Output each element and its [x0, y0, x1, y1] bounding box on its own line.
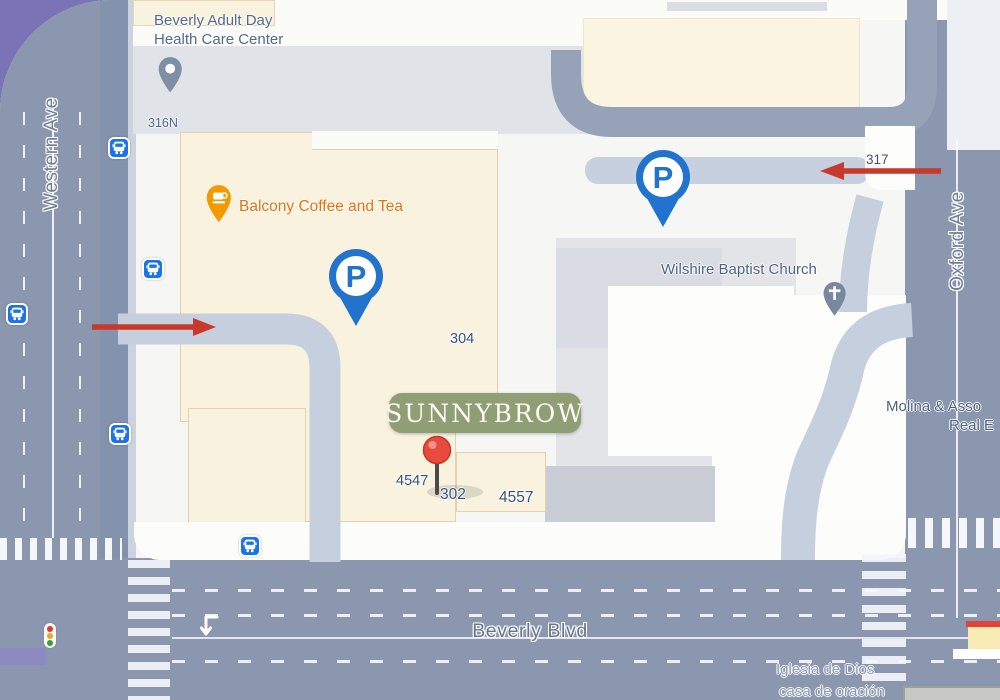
- parking-lot-strip: [585, 157, 870, 184]
- parking-pin-icon[interactable]: P: [636, 150, 690, 227]
- bus-stop-icon[interactable]: [109, 423, 131, 445]
- address-302: 302: [440, 486, 466, 504]
- bus-stop-icon[interactable]: [239, 535, 261, 557]
- street-label-beverly-blvd: Beverly Blvd: [455, 620, 605, 643]
- crosswalk-western: [0, 538, 122, 560]
- block-oxford-top-sidewalk: [947, 0, 1000, 150]
- lane-dash-western-1: [23, 112, 25, 538]
- alley-north-band: [133, 46, 603, 134]
- bus-stop-icon[interactable]: [6, 303, 28, 325]
- address-316n: 316N: [148, 116, 178, 130]
- poi-molina-line1[interactable]: Molina & Asso: [886, 398, 981, 415]
- address-317: 317: [866, 152, 889, 167]
- sunnybrow-marker-badge[interactable]: SUNNYBROW: [389, 393, 581, 433]
- svg-text:P: P: [653, 160, 674, 195]
- sidewalk-strip-bottom-right: [953, 649, 1000, 659]
- street-label-oxford-ave: Oxford Ave: [947, 166, 969, 316]
- poi-beverly-adult-line2[interactable]: Health Care Center: [154, 31, 283, 48]
- lane-dash-western-2: [79, 112, 81, 538]
- poi-molina-line2[interactable]: Real E: [949, 417, 994, 434]
- crosswalk-beverly-west: [128, 560, 170, 700]
- address-4557: 4557: [499, 489, 533, 507]
- building-top-right-cream: [583, 18, 860, 118]
- crosswalk-oxford: [908, 518, 1000, 548]
- poi-beverly-adult-line1[interactable]: Beverly Adult Day: [154, 12, 272, 29]
- building-top-gray-cap: [667, 2, 827, 11]
- building-bottom-left-cream: [188, 408, 306, 526]
- poi-wilshire-church[interactable]: Wilshire Baptist Church: [661, 261, 817, 278]
- transit-overlay-purple: [0, 648, 46, 665]
- address-304: 304: [450, 331, 474, 347]
- traffic-light-icon: [44, 623, 56, 648]
- building-dark-gray: [545, 466, 715, 522]
- address-4547: 4547: [396, 473, 428, 489]
- poi-iglesia-line1[interactable]: Iglesia de Dios: [776, 661, 874, 678]
- bus-stop-icon[interactable]: [142, 258, 164, 280]
- building-molina-white: [780, 295, 906, 557]
- poi-balcony-coffee[interactable]: Balcony Coffee and Tea: [239, 198, 403, 216]
- map-canvas[interactable]: P P Western Ave Oxford Ave Beverly Blvd …: [0, 0, 1000, 700]
- street-label-western-ave: Western Ave: [41, 79, 63, 229]
- building-edge-bottom-bar: [903, 686, 1000, 700]
- building-central-top-notch: [312, 131, 498, 150]
- poi-iglesia-line2[interactable]: casa de oración: [779, 683, 885, 700]
- bus-stop-icon[interactable]: [108, 137, 130, 159]
- building-central-main: [180, 132, 498, 422]
